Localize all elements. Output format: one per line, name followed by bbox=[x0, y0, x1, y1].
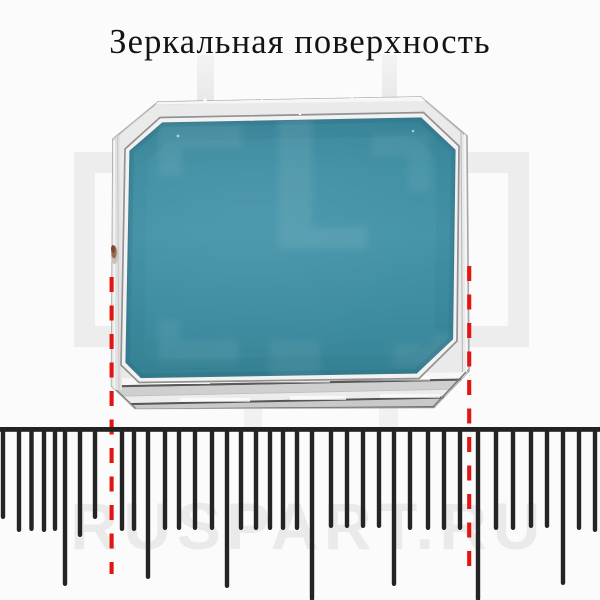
svg-text:Зеркальная поверхность: Зеркальная поверхность bbox=[109, 23, 490, 61]
svg-text:RUSPART.RU: RUSPART.RU bbox=[70, 489, 545, 563]
